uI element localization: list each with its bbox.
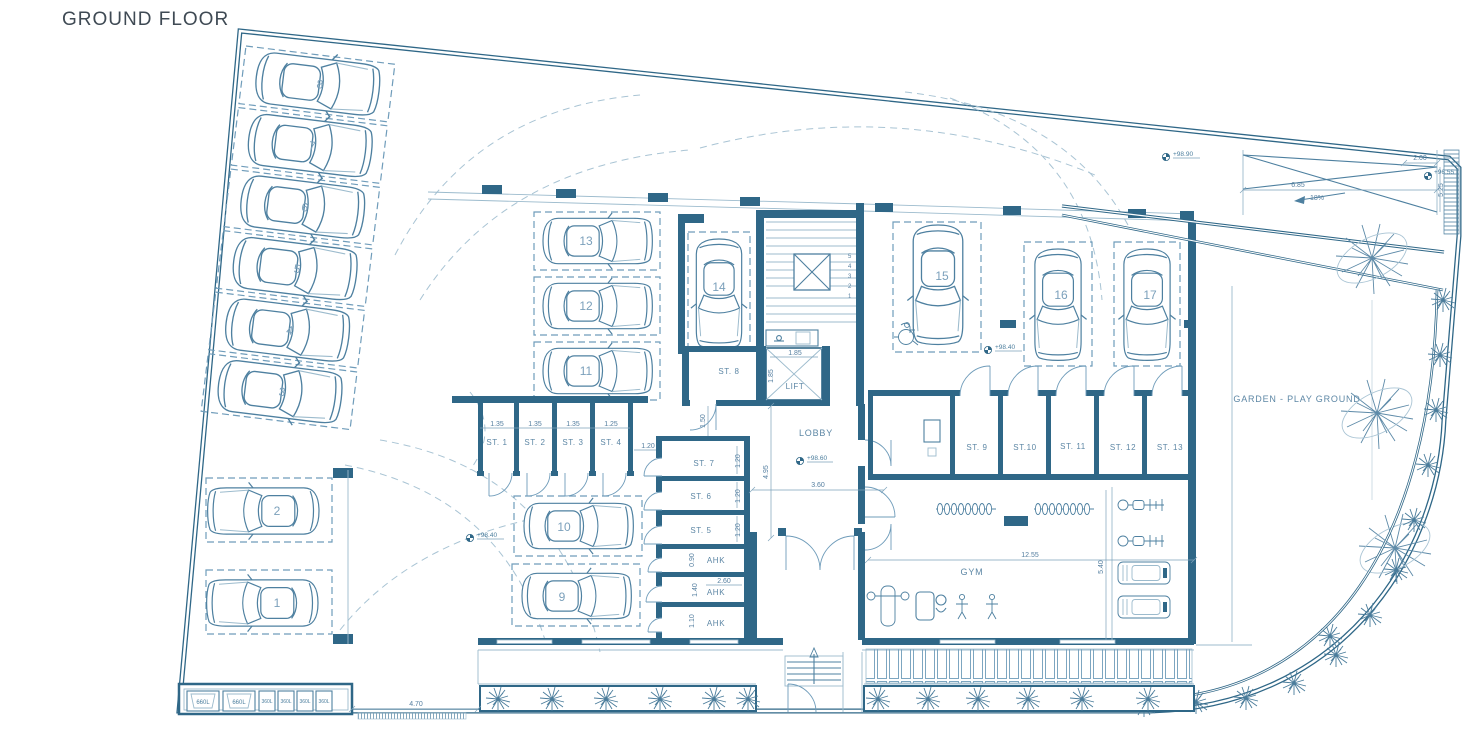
dim-label-slope: 18% [1310, 195, 1324, 202]
paver-band [866, 649, 1192, 683]
storage-row-st1-4: 1.35 1.35 1.35 1.25 ST. 1 ST. 2 ST. 3 ST… [452, 396, 662, 496]
car-icon [207, 574, 318, 631]
level-marker-icon [1162, 153, 1169, 160]
parking-space: 16 [1024, 242, 1092, 366]
parking-space-label: 13 [579, 234, 593, 248]
front-terrace [478, 648, 1194, 712]
weight-rack-icon [936, 504, 996, 515]
waste-bin: 360L [278, 691, 294, 711]
parking-space-label: 17 [1143, 288, 1157, 302]
gym-figure-icon [986, 594, 998, 619]
parking-column-left: 8 7 6 5 4 3 [201, 43, 395, 432]
stair-step-number: 4 [848, 264, 852, 270]
bin-label: 360L [318, 699, 329, 705]
dim-label: 3.60 [811, 482, 825, 489]
room-label-storage: ST. 6 [690, 492, 711, 501]
parking-space-label: 12 [579, 299, 593, 313]
bin-label: 360L [280, 699, 291, 705]
parking-space: 8 [239, 43, 396, 124]
car-icon [208, 482, 319, 539]
room-label-storage: ST. 9 [966, 443, 987, 452]
level-marker-icon [984, 346, 991, 353]
dim-label: 2.60 [717, 578, 731, 585]
parking-space: 14 [688, 232, 750, 350]
parking-space-label: 15 [935, 269, 949, 283]
dim-label: 6.85 [1291, 182, 1305, 189]
dim-label: 1.35 [566, 421, 580, 428]
room-st8: ST. 8 1.50 [682, 346, 766, 436]
treadmill-icon [1118, 596, 1170, 618]
storage-row-st9-13: ST. 9 ST.10 ST. 11 ST. 12 ST. 13 [868, 366, 1194, 480]
entrance-steps [785, 648, 843, 686]
dim-label: 1.20 [735, 523, 742, 537]
car-icon [543, 213, 652, 269]
stair-step-number: 1 [848, 294, 852, 300]
dim-label: 5.40 [1098, 560, 1105, 574]
room-label-ahk: AHK [707, 556, 725, 565]
dim-label: 0.90 [689, 553, 696, 567]
room-label-storage: ST. 5 [690, 526, 711, 535]
dim-label: 5.25 [1438, 183, 1445, 197]
bin-store: 660L 660L 360L 360L 360L 360L 4.70 [179, 684, 481, 719]
car-icon [1029, 249, 1086, 360]
exercise-machine-icon [1118, 535, 1164, 547]
wc-room [766, 330, 818, 346]
parking-space: 10 [514, 496, 642, 556]
room-label-storage: ST. 2 [524, 438, 545, 447]
ramp-area: 6.85 18% 2.00 5.25 +98.90 +96.55 [1062, 150, 1454, 290]
stair-step-number: 5 [848, 254, 852, 260]
bin-label: 660L [232, 700, 246, 706]
room-label-ahk: AHK [707, 619, 725, 628]
ramp-hatch-strip [1444, 150, 1459, 234]
level-marker-label: +98.40 [995, 344, 1015, 351]
threshold-hatch [358, 713, 466, 719]
room-label-storage: ST. 4 [600, 438, 621, 447]
car-icon [522, 568, 631, 624]
waste-bin: 360L [297, 691, 313, 711]
parking-space: 9 [512, 564, 640, 626]
dim-label: 1.25 [604, 421, 618, 428]
dim-label: 1.20 [641, 443, 655, 450]
waste-bin: 660L [187, 691, 219, 711]
parking-space-label: 11 [580, 364, 593, 378]
dim-label: 1.40 [692, 583, 699, 597]
level-marker-icon [466, 534, 473, 541]
parking-space: 6 [223, 166, 380, 247]
room-label-garden: GARDEN - PLAY GROUND [1233, 394, 1360, 404]
parking-space: 2 [206, 478, 332, 542]
room-label-storage: ST. 7 [693, 459, 714, 468]
parking-space: 13 [534, 212, 660, 270]
dim-label: 1.85 [788, 350, 802, 357]
room-label-lobby: LOBBY [799, 428, 833, 438]
dim-label: 4.70 [409, 701, 423, 708]
level-marker-icon [1424, 172, 1431, 179]
ground-floor-plan: 8 7 6 5 4 3 2 [0, 0, 1472, 730]
lift-shaft: 1.85 1.85 LIFT [758, 346, 830, 406]
dim-label: 12.55 [1021, 552, 1039, 559]
tree-icon [1334, 378, 1420, 449]
page-title: GROUND FLOOR [62, 9, 229, 30]
parking-space-label: 1 [274, 596, 281, 610]
room-label-gym: GYM [961, 567, 984, 577]
dim-label: 1.10 [689, 614, 696, 628]
dim-label: 1.20 [735, 489, 742, 503]
room-label-lift: LIFT [786, 382, 805, 391]
room-label-storage: ST. 11 [1060, 442, 1086, 451]
dim-label: 2.00 [1413, 155, 1427, 162]
car-icon [543, 343, 652, 399]
parking-space: 17 [1114, 242, 1180, 366]
room-label-storage: ST. 1 [486, 438, 507, 447]
bin-label: 660L [196, 700, 210, 706]
room-label-storage: ST. 12 [1110, 443, 1136, 452]
parking-space: 12 [534, 277, 660, 335]
parking-space: 1 [206, 570, 332, 634]
waste-bin: 360L [259, 691, 275, 711]
parking-space: 3 [201, 351, 358, 432]
parking-space: 7 [231, 105, 388, 186]
stair-step-number: 3 [848, 274, 852, 280]
car-icon [543, 278, 652, 334]
level-marker-icon [796, 457, 803, 464]
room-label-storage: ST. 3 [562, 438, 583, 447]
room-label-ahk: AHK [707, 588, 725, 597]
bench-press-icon [867, 586, 909, 626]
level-marker-label: +98.90 [1173, 151, 1193, 158]
weight-rack-icon [1034, 504, 1094, 515]
car-icon [907, 225, 968, 344]
tree-icon [1329, 223, 1415, 294]
bin-label: 360L [299, 699, 310, 705]
ground-floor-sheet: 8 7 6 5 4 3 2 [0, 0, 1472, 730]
waste-bin: 360L [316, 691, 332, 711]
room-label-storage: ST. 13 [1157, 443, 1183, 452]
parking-space-label: 9 [559, 590, 566, 604]
dim-label: 1.85 [768, 369, 775, 383]
car-icon [1118, 249, 1175, 360]
gym-figure-icon [956, 594, 968, 619]
treadmill-icon [1118, 562, 1170, 584]
parking-space-label: 16 [1054, 288, 1068, 302]
stair-step-number: 2 [848, 284, 852, 290]
exercise-machine-icon [1118, 499, 1164, 511]
car-icon [524, 498, 633, 554]
dim-label: 1.35 [528, 421, 542, 428]
level-marker-label: +96.55 [1434, 169, 1454, 176]
parking-space-label: 10 [557, 520, 571, 534]
level-marker-label: +98.60 [807, 455, 827, 462]
dim-label: 1.20 [735, 454, 742, 468]
dim-label: 1.50 [700, 414, 707, 428]
parking-space-label: 2 [274, 504, 281, 518]
waste-bin: 660L [223, 691, 255, 711]
level-marker-label: +98.40 [477, 532, 497, 539]
parking-space: 11 [534, 342, 660, 400]
room-label-storage: ST.10 [1013, 443, 1036, 452]
parking-space: 5 [216, 228, 373, 309]
dim-label: 4.95 [763, 465, 770, 479]
storage-column-st5-7-ahk: ST. 7 ST. 6 ST. 5 AHK AHK AHK 1.20 1.20 … [644, 436, 750, 640]
room-label-storage: ST. 8 [718, 367, 739, 376]
parking-space-label: 14 [712, 280, 726, 294]
parking-space: 4 [208, 289, 365, 370]
bin-label: 360L [261, 699, 272, 705]
parking-space-accessible: 15 [893, 222, 981, 352]
dim-label: 1.35 [490, 421, 504, 428]
